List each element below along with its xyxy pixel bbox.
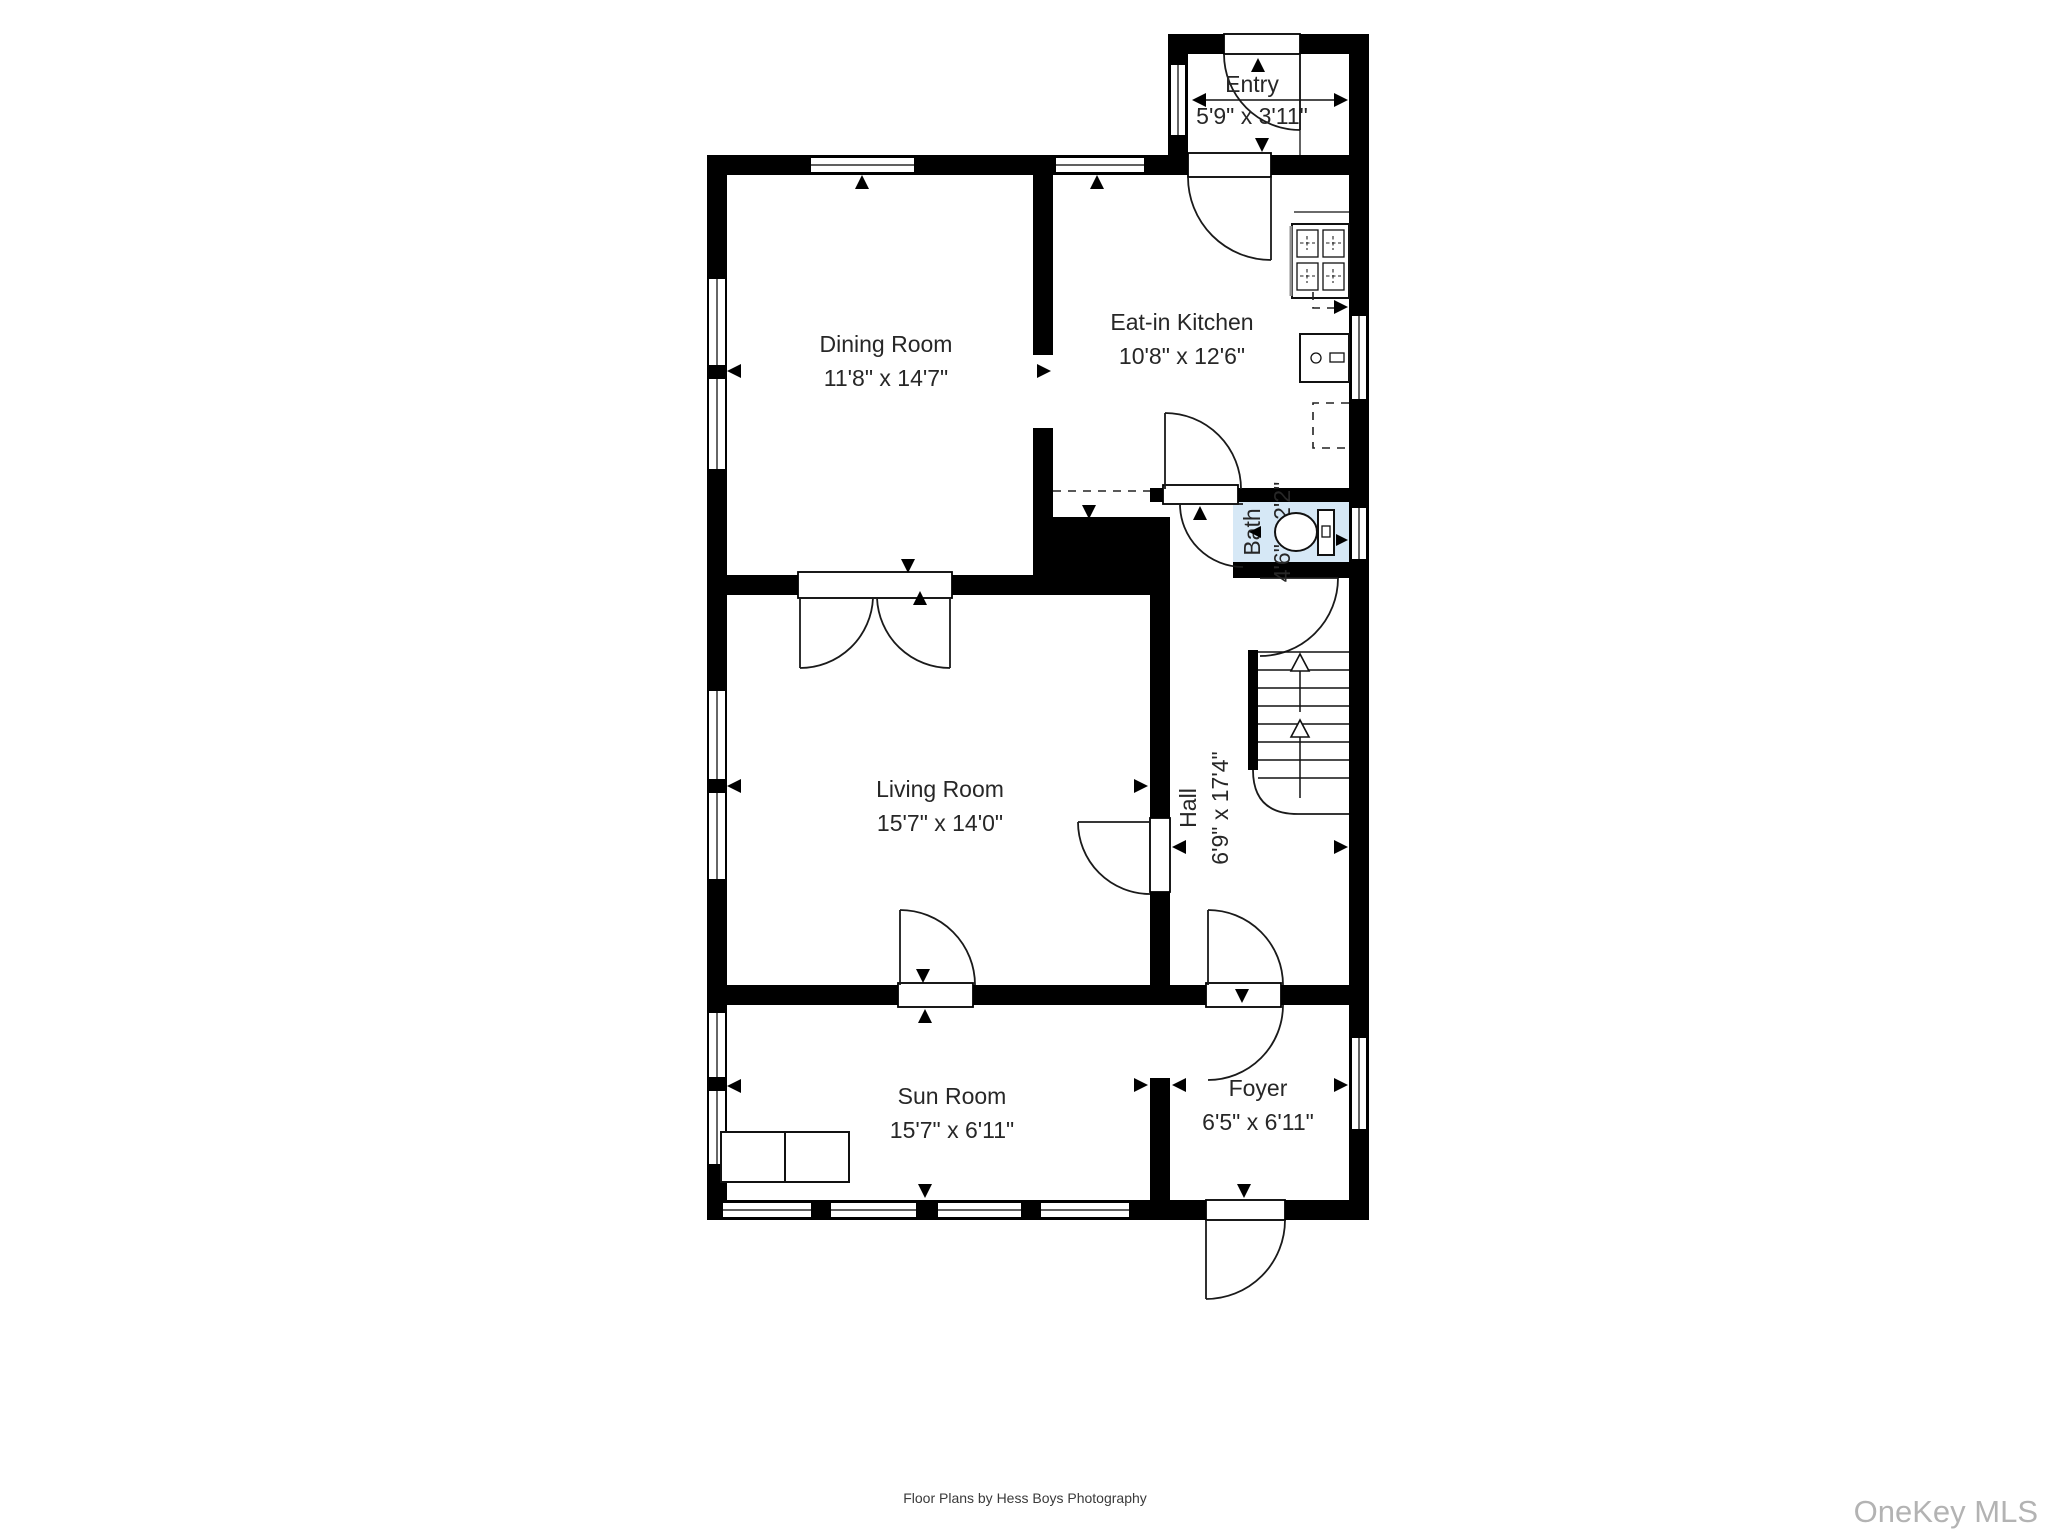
- door: [1260, 578, 1338, 656]
- room-dimensions: 6'5" x 6'11": [1202, 1109, 1314, 1135]
- toilet: [1275, 510, 1334, 555]
- french-doors: [798, 572, 952, 668]
- walls: [707, 34, 1369, 1220]
- staircase: [1253, 652, 1349, 814]
- kitchen-sink: [1300, 334, 1349, 382]
- window: [707, 690, 727, 880]
- room-dimensions: 6'9" x 17'4": [1207, 751, 1233, 864]
- room-name: Eat-in Kitchen: [1110, 309, 1253, 335]
- stairs-up-arrow-icon: [1291, 654, 1309, 671]
- room-dimensions: 5'9" x 3'11": [1196, 103, 1308, 129]
- room-dimensions: 15'7" x 14'0": [877, 810, 1003, 836]
- stairs-up-arrow-icon: [1291, 720, 1309, 737]
- room-label-dining-room: Dining Room 11'8" x 14'7": [820, 331, 953, 391]
- room-dimensions: 15'7" x 6'11": [890, 1117, 1014, 1143]
- door: [1206, 1200, 1285, 1299]
- room-name: Foyer: [1229, 1075, 1288, 1101]
- caption: Floor Plans by Hess Boys Photography: [903, 1490, 1147, 1506]
- room-label-foyer: Foyer 6'5" x 6'11": [1202, 1075, 1314, 1135]
- room-name: Entry: [1225, 71, 1279, 97]
- room-dimensions: 11'8" x 14'7": [824, 365, 948, 391]
- room-dimensions: 10'8" x 12'6": [1119, 343, 1245, 369]
- room-name: Hall: [1175, 788, 1201, 828]
- room-label-eat-in-kitchen: Eat-in Kitchen 10'8" x 12'6": [1110, 309, 1253, 369]
- room-name: Dining Room: [820, 331, 953, 357]
- stairs-rail-curve: [1253, 770, 1349, 814]
- room-label-sun-room: Sun Room 15'7" x 6'11": [890, 1083, 1014, 1143]
- room-name: Sun Room: [898, 1083, 1007, 1109]
- window: [1170, 64, 1186, 136]
- window-seat: [721, 1132, 849, 1182]
- watermark: OneKey MLS: [1854, 1494, 2038, 1529]
- door: [1163, 413, 1241, 504]
- door: [898, 910, 975, 1007]
- room-name: Living Room: [876, 776, 1004, 802]
- floor-plan: Bath 4'6" x 2'2": [0, 0, 2048, 1536]
- door: [1078, 818, 1170, 894]
- room-label-living-room: Living Room 15'7" x 14'0": [876, 776, 1004, 836]
- window: [707, 278, 727, 470]
- door: [1188, 153, 1271, 260]
- stove: [1291, 224, 1349, 298]
